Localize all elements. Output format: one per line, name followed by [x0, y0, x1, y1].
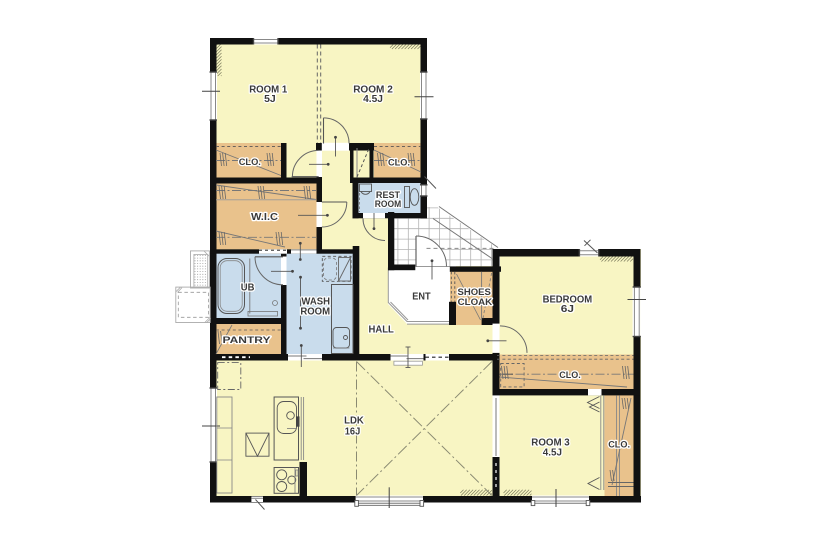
svg-text:6J: 6J — [561, 303, 574, 315]
svg-text:CLO.: CLO. — [559, 370, 581, 381]
svg-text:W.I.C: W.I.C — [251, 212, 278, 223]
svg-text:ROOM: ROOM — [300, 306, 330, 318]
svg-text:4.5J: 4.5J — [543, 447, 562, 459]
svg-text:PANTRY: PANTRY — [223, 335, 272, 346]
svg-text:CLO.: CLO. — [608, 440, 630, 451]
svg-text:CLOAK: CLOAK — [458, 297, 493, 308]
svg-text:HALL: HALL — [369, 323, 395, 335]
svg-text:ENT: ENT — [412, 291, 431, 303]
svg-text:UB: UB — [241, 282, 255, 294]
svg-text:4.5J: 4.5J — [363, 93, 383, 105]
svg-text:CLO.: CLO. — [388, 157, 410, 168]
svg-text:CLO.: CLO. — [239, 157, 261, 168]
svg-text:5J: 5J — [264, 93, 276, 105]
svg-text:ROOM: ROOM — [375, 199, 401, 210]
svg-text:16J: 16J — [345, 425, 361, 437]
